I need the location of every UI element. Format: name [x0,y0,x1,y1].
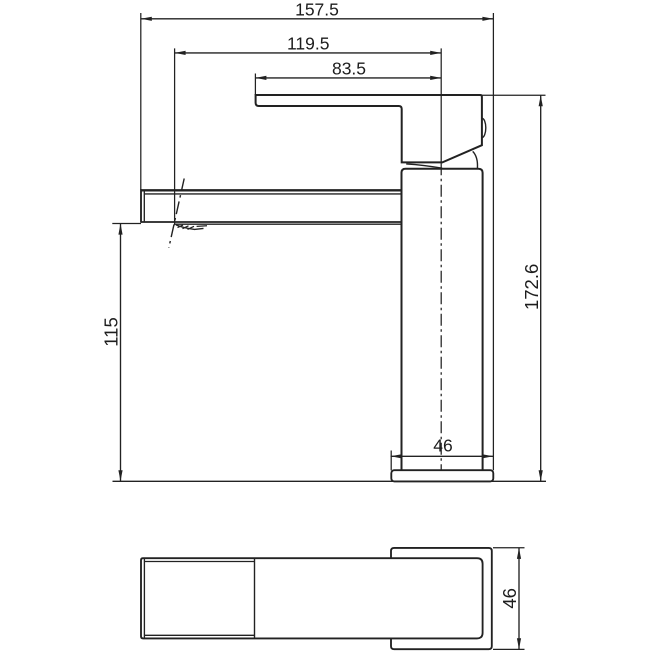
svg-text:115: 115 [101,317,122,347]
svg-text:119.5: 119.5 [287,33,330,53]
svg-text:46: 46 [499,588,520,609]
svg-text:172.6: 172.6 [521,264,542,310]
svg-text:157.5: 157.5 [295,0,339,20]
svg-text:83.5: 83.5 [332,58,366,78]
svg-text:46: 46 [433,436,452,456]
